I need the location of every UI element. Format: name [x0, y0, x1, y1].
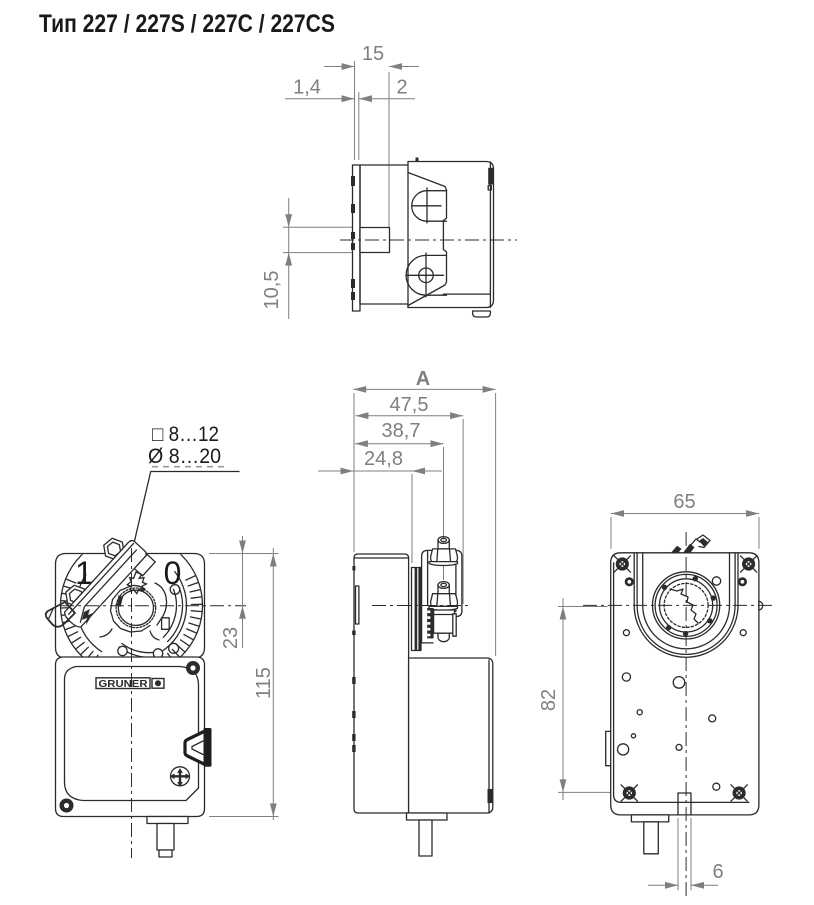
svg-text:47,5: 47,5: [390, 394, 429, 416]
svg-text:38,7: 38,7: [382, 420, 421, 442]
svg-text:GRUNER: GRUNER: [99, 678, 148, 690]
svg-text:10,5: 10,5: [261, 271, 283, 310]
svg-text:2: 2: [396, 77, 407, 99]
svg-text:6: 6: [712, 861, 723, 883]
svg-text:Тип 227 / 227S / 227C / 227CS: Тип 227 / 227S / 227C / 227CS: [39, 10, 335, 38]
svg-text:115: 115: [253, 667, 275, 699]
svg-text:82: 82: [538, 689, 560, 711]
svg-text:□ 8…12: □ 8…12: [152, 423, 219, 446]
svg-text:A: A: [416, 368, 430, 390]
svg-text:1,4: 1,4: [293, 77, 321, 99]
svg-text:23: 23: [220, 627, 242, 649]
svg-text:65: 65: [673, 491, 695, 513]
svg-text:15: 15: [362, 43, 384, 65]
svg-text:24,8: 24,8: [364, 448, 403, 470]
svg-text:Ø 8…20: Ø 8…20: [148, 445, 221, 468]
